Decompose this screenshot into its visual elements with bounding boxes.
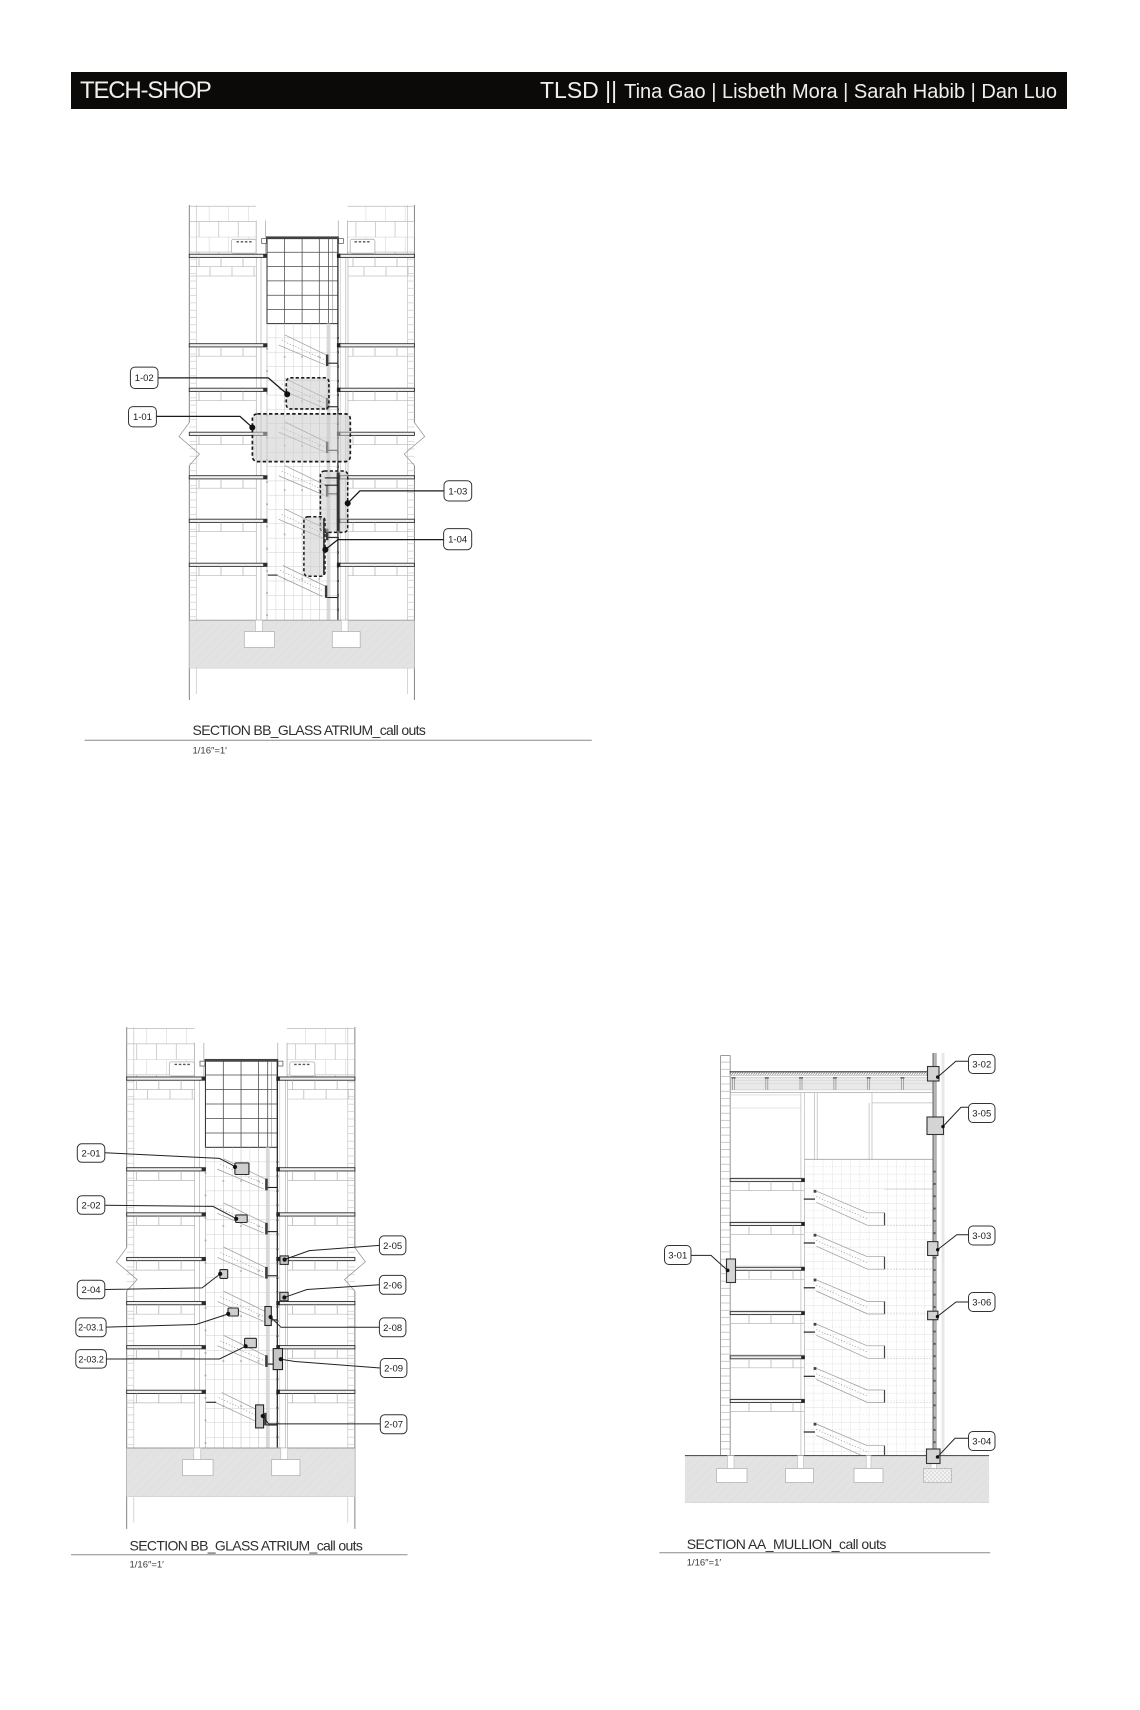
svg-text:2-08: 2-08: [383, 1323, 402, 1334]
svg-text:2-01: 2-01: [82, 1148, 101, 1159]
svg-text:2-06: 2-06: [383, 1280, 402, 1291]
svg-text:3-01: 3-01: [668, 1250, 687, 1261]
svg-text:3-04: 3-04: [972, 1436, 991, 1447]
svg-text:2-02: 2-02: [82, 1200, 101, 1211]
svg-text:2-09: 2-09: [384, 1363, 403, 1374]
svg-text:SECTION AA_MULLION_call outs: SECTION AA_MULLION_call outs: [687, 1536, 887, 1552]
svg-text:2-03.1: 2-03.1: [78, 1323, 104, 1333]
svg-text:1/16″=1′: 1/16″=1′: [687, 1558, 722, 1569]
svg-text:SECTION BB_GLASS ATRIUM_call o: SECTION BB_GLASS ATRIUM_call outs: [193, 722, 426, 738]
svg-text:1-03: 1-03: [448, 486, 467, 497]
svg-text:SECTION BB_GLASS ATRIUM_call o: SECTION BB_GLASS ATRIUM_call outs: [130, 1538, 363, 1554]
svg-text:1-04: 1-04: [448, 535, 467, 546]
svg-text:1/16″=1′: 1/16″=1′: [193, 746, 228, 757]
svg-text:1/16″=1′: 1/16″=1′: [130, 1560, 165, 1571]
svg-text:1-01: 1-01: [133, 412, 152, 423]
svg-text:1-02: 1-02: [135, 373, 154, 384]
svg-text:3-05: 3-05: [972, 1108, 991, 1119]
svg-text:3-06: 3-06: [972, 1297, 991, 1308]
svg-text:2-07: 2-07: [384, 1420, 403, 1431]
svg-text:3-03: 3-03: [972, 1231, 991, 1242]
svg-text:3-02: 3-02: [972, 1059, 991, 1070]
svg-text:2-05: 2-05: [383, 1241, 402, 1252]
svg-text:2-03.2: 2-03.2: [78, 1354, 104, 1364]
svg-text:2-04: 2-04: [82, 1285, 101, 1296]
